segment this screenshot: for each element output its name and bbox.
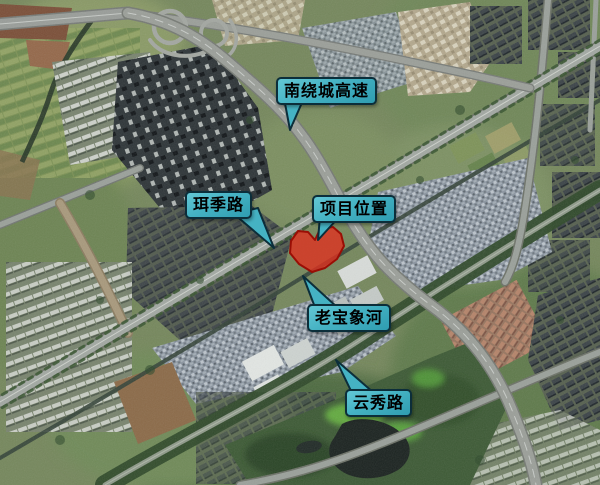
label-project-location: 项目位置 [312,195,396,223]
satellite-imagery [0,0,600,485]
satellite-map-view: 南绕城高速 珥季路 项目位置 老宝象河 云秀路 [0,0,600,485]
label-laobaoxiang-river: 老宝象河 [307,304,391,332]
label-south-ring-expressway: 南绕城高速 [276,77,377,105]
photo-grain [0,0,600,485]
label-erji-road: 珥季路 [185,191,252,219]
label-yunxiu-road: 云秀路 [345,389,412,417]
